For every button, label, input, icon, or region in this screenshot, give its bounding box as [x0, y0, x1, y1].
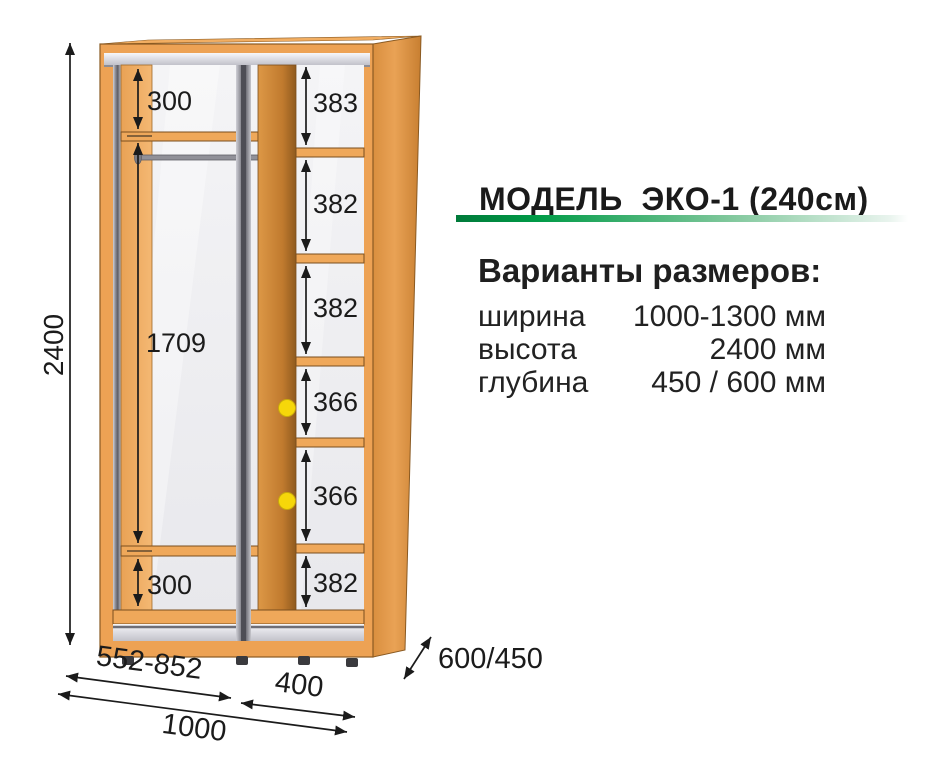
title-underline	[456, 215, 908, 222]
dim-total-height: 2400	[38, 314, 69, 376]
dim-label: 366	[313, 481, 358, 511]
spec-value: 450 / 600 мм	[651, 366, 826, 399]
dim-label: 382	[313, 293, 358, 323]
cabinet-side-panel	[373, 36, 421, 657]
spec-value: 2400 мм	[710, 333, 826, 366]
model-title: МОДЕЛЬ ЭКО-1 (240см)	[479, 181, 869, 218]
dim-label: 383	[313, 88, 358, 118]
left-door-track	[113, 65, 121, 624]
spec-rows: ширина 1000-1300 мм высота 2400 мм глуби…	[478, 300, 826, 399]
foot	[236, 656, 248, 665]
cabinet-top-edge	[100, 36, 421, 44]
shelf	[296, 254, 364, 263]
spec-value: 1000-1300 мм	[633, 300, 826, 333]
dim-line-door-zone	[66, 676, 231, 698]
spec-row: высота 2400 мм	[478, 333, 826, 366]
partition-panel	[258, 65, 296, 618]
shelf	[296, 357, 364, 366]
door-frame-divider-core	[241, 65, 246, 641]
spec-heading: Варианты размеров:	[478, 252, 821, 290]
foot	[346, 658, 358, 667]
top-rail	[104, 53, 370, 65]
spec-label: высота	[478, 333, 577, 366]
dim-depth: 600/450	[438, 643, 543, 675]
foot	[298, 656, 310, 665]
dim-label: 366	[313, 387, 358, 417]
dim-label: 300	[147, 570, 192, 600]
spec-row: глубина 450 / 600 мм	[478, 366, 826, 399]
dim-label: 300	[147, 86, 192, 116]
spec-row: ширина 1000-1300 мм	[478, 300, 826, 333]
option-dot	[279, 493, 296, 510]
dim-label: 382	[313, 568, 358, 598]
dim-line-depth	[404, 637, 431, 679]
dim-total-width: 1000	[160, 708, 228, 748]
dim-line-shelf-zone	[241, 703, 355, 717]
spec-label: ширина	[478, 300, 586, 333]
page: 2400 300 1709 300 383 382 382 366 366 38…	[0, 0, 931, 768]
shelf	[296, 544, 364, 553]
shelf	[296, 438, 364, 447]
dim-label: 1709	[146, 328, 206, 358]
dim-label: 382	[313, 189, 358, 219]
spec-label: глубина	[478, 366, 588, 399]
dim-shelf-zone: 400	[273, 666, 325, 704]
shelf	[296, 148, 364, 157]
option-dot	[279, 400, 296, 417]
